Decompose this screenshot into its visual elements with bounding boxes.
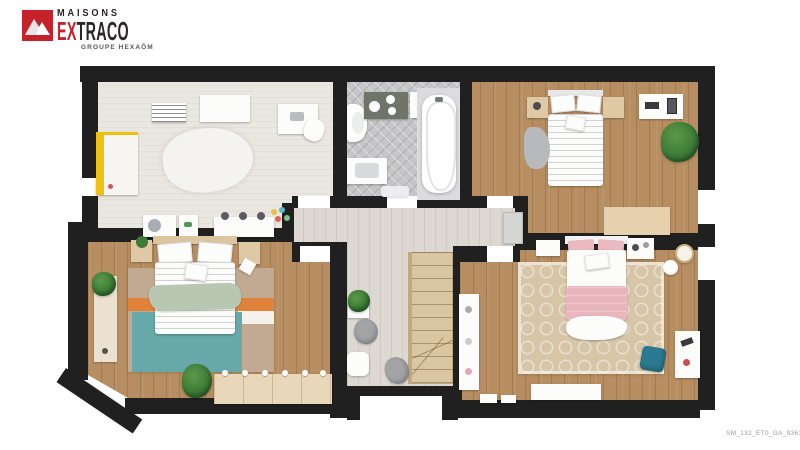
bathtub (422, 95, 456, 193)
brand-line2-red: EX (57, 16, 77, 46)
brand-logo: MAISONS EXTRACO GROUPE HEXAŌM (22, 8, 222, 56)
white-table (200, 95, 250, 122)
plan-reference: SM_132_ET0_GA_93619 (726, 430, 800, 437)
sink-basin (355, 163, 379, 178)
desk-item-red (683, 359, 690, 366)
console (531, 384, 601, 400)
duvet-pink (566, 286, 627, 320)
shelf-item (465, 306, 472, 313)
plant-small (136, 236, 148, 248)
brand-line2-dark: TRACO (77, 16, 129, 46)
foot-blanket (566, 316, 627, 340)
knob (282, 370, 288, 376)
corridor-cabinet (503, 212, 523, 244)
vanity-sink (347, 158, 387, 184)
brand-line2: EXTRACO (57, 19, 129, 43)
wall-notch-left (347, 396, 360, 420)
stool (239, 212, 247, 220)
door-bathroom (387, 196, 417, 208)
tall-bookshelf (459, 294, 479, 390)
floor-plan (75, 64, 723, 428)
bathroom-shelf (364, 92, 408, 119)
basket (386, 95, 395, 104)
small-cabinet (179, 215, 198, 237)
nightstand (603, 97, 624, 118)
shelf-item (465, 368, 472, 375)
box (480, 394, 497, 403)
wardrobe-detail (108, 184, 113, 189)
picture-frame (667, 98, 677, 114)
mountain-icon (22, 10, 53, 41)
bath-mat (381, 186, 409, 197)
yellow-wardrobe (96, 132, 138, 195)
door-kids-bedroom (298, 196, 330, 208)
pillow (576, 94, 602, 113)
decor (632, 244, 639, 251)
grey-rug (524, 127, 550, 169)
stair-rail (408, 252, 412, 384)
toy (284, 215, 290, 221)
nightstand (536, 240, 560, 256)
floor-boxes (480, 394, 520, 404)
knob (262, 370, 268, 376)
knob (320, 370, 326, 376)
teal-ottoman (639, 345, 667, 373)
toys (271, 207, 293, 223)
throw-sage (149, 282, 242, 311)
desk-laptop (290, 112, 304, 121)
wall-shelf (639, 94, 683, 119)
pillow (197, 242, 233, 265)
shelf-books (645, 102, 659, 109)
shelf-item (465, 338, 472, 345)
nightstand (527, 97, 548, 118)
stool (257, 212, 265, 220)
window-right-upper (698, 190, 715, 224)
cabinet-fan (148, 219, 161, 232)
bench-knob (102, 348, 108, 354)
pillow-small (184, 263, 208, 282)
pillow (157, 242, 193, 265)
rug-white-stripe (238, 311, 274, 324)
knob (242, 370, 248, 376)
decor (643, 242, 649, 248)
cabinet-item (184, 222, 192, 227)
radiator (152, 103, 186, 122)
nightstand (131, 240, 152, 262)
side-table (347, 352, 369, 376)
toy (271, 209, 277, 215)
basket (388, 107, 396, 115)
bathtub-basin (426, 101, 456, 191)
door-bedroom2 (487, 196, 513, 208)
desk (675, 331, 700, 378)
storage-cabinet (143, 215, 176, 237)
wall-bathroom-right (460, 82, 472, 203)
wall-top (80, 66, 714, 82)
door-bedroom3 (300, 246, 330, 262)
wall-right (698, 66, 715, 410)
basket (369, 101, 380, 112)
bed-double-pink (565, 236, 628, 340)
round-pouf (663, 260, 678, 275)
box (501, 395, 516, 403)
round-mirror (675, 244, 694, 263)
exterior-notch (360, 396, 442, 422)
kids-table (214, 217, 274, 237)
plant-on-stand (348, 290, 370, 312)
bench (604, 207, 670, 235)
staircase (408, 252, 453, 384)
lamp (533, 102, 541, 110)
pillow (550, 94, 576, 113)
toy (279, 207, 285, 213)
toy (275, 216, 281, 222)
dresser (214, 374, 332, 404)
brand-wordmark: MAISONS EXTRACO GROUPE HEXAŌM (57, 8, 188, 51)
wall-bathroom-left (333, 82, 347, 203)
door-master-bedroom (487, 246, 513, 262)
pillow-small (565, 114, 586, 131)
window-right-lower (698, 247, 715, 280)
stool (221, 212, 229, 220)
nightstand (627, 238, 654, 259)
knob (302, 370, 308, 376)
bed-single (548, 90, 603, 186)
knob (222, 370, 228, 376)
wall-left-lower (68, 228, 88, 380)
toilet-seat (352, 112, 364, 134)
bed-double (153, 236, 237, 334)
desk-item (680, 337, 693, 347)
bathtub-faucet (435, 97, 443, 102)
